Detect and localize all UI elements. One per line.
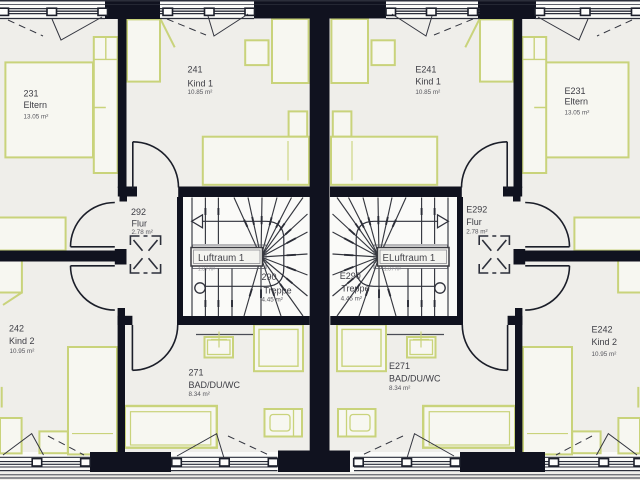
svg-text:Treppe: Treppe — [264, 285, 292, 295]
svg-text:ELuftraum 1: ELuftraum 1 — [383, 253, 436, 264]
svg-text:242: 242 — [9, 324, 24, 334]
svg-text:Eltern: Eltern — [24, 100, 48, 110]
svg-text:13.05 m²: 13.05 m² — [24, 113, 49, 120]
svg-text:E271: E271 — [389, 361, 410, 371]
svg-text:8.34 m²: 8.34 m² — [189, 391, 210, 398]
svg-text:13.05 m²: 13.05 m² — [565, 110, 590, 117]
svg-text:Kind 2: Kind 2 — [592, 337, 618, 347]
svg-text:Flur: Flur — [132, 219, 148, 229]
svg-text:Treppe: Treppe — [341, 284, 369, 294]
svg-text:4.45 m²: 4.45 m² — [262, 296, 283, 303]
svg-text:10.85 m²: 10.85 m² — [415, 89, 440, 96]
svg-text:BAD/DU/WC: BAD/DU/WC — [189, 380, 241, 390]
svg-text:1.37 m²: 1.37 m² — [384, 267, 401, 273]
svg-text:E241: E241 — [415, 64, 436, 74]
svg-text:E292: E292 — [466, 205, 487, 215]
svg-text:2.78 m²: 2.78 m² — [466, 228, 487, 235]
svg-text:Kind 1: Kind 1 — [415, 77, 441, 87]
svg-text:2.78 m²: 2.78 m² — [132, 229, 153, 236]
svg-text:E290: E290 — [340, 271, 361, 281]
svg-text:10.95 m²: 10.95 m² — [592, 351, 617, 358]
svg-text:Eltern: Eltern — [565, 97, 589, 107]
svg-text:231: 231 — [24, 88, 39, 98]
svg-text:271: 271 — [189, 367, 204, 377]
svg-text:E231: E231 — [565, 86, 586, 96]
svg-text:8.34 m²: 8.34 m² — [389, 385, 410, 392]
svg-text:10.85 m²: 10.85 m² — [188, 89, 213, 96]
svg-text:241: 241 — [188, 64, 203, 74]
svg-text:4.45 m²: 4.45 m² — [341, 295, 362, 302]
svg-text:292: 292 — [131, 207, 146, 217]
svg-text:290: 290 — [262, 272, 277, 282]
svg-text:Flur: Flur — [466, 217, 482, 227]
svg-text:Luftraum 1: Luftraum 1 — [198, 253, 244, 264]
svg-text:Kind 2: Kind 2 — [9, 336, 35, 346]
svg-text:Kind 1: Kind 1 — [188, 79, 214, 89]
svg-text:E242: E242 — [592, 325, 613, 335]
svg-text:1.37 m²: 1.37 m² — [198, 267, 215, 273]
svg-text:10.95 m²: 10.95 m² — [10, 348, 35, 355]
svg-text:BAD/DU/WC: BAD/DU/WC — [389, 374, 441, 384]
